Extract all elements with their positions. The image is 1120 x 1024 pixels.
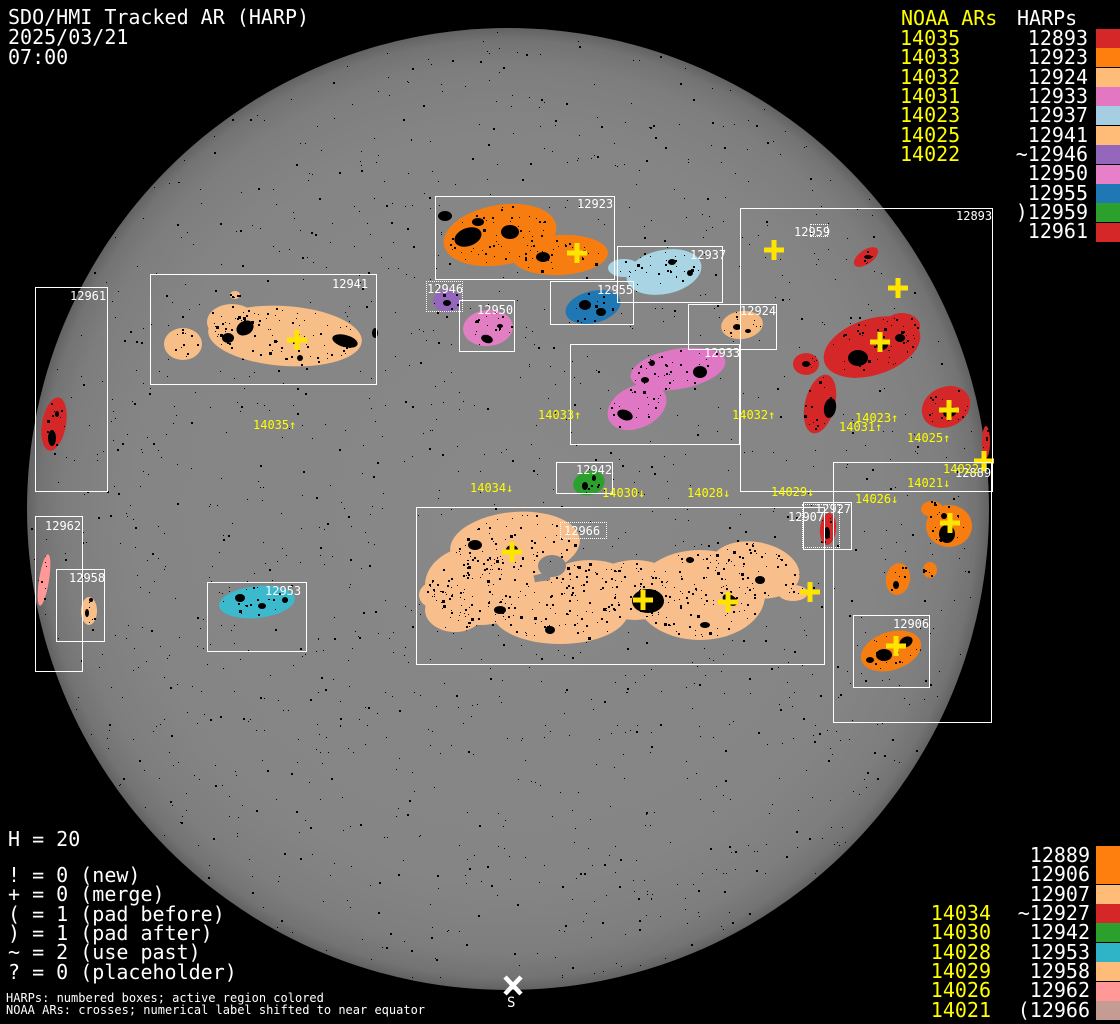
noaa-disk-label: 14035↑	[253, 419, 296, 431]
harp-box-label: 12924	[740, 305, 776, 317]
noaa-disk-label: 14029↓	[771, 486, 814, 498]
noaa-disk-label: 14028↓	[687, 487, 730, 499]
noaa-disk-label: 14034↓	[470, 482, 513, 494]
harp-count: H = 20	[8, 830, 80, 849]
color-swatch	[1096, 145, 1120, 164]
color-swatch	[1096, 904, 1120, 923]
flag-legend: ! = 0 (new) + = 0 (merge) ( = 1 (pad bef…	[8, 866, 237, 982]
color-swatch	[1096, 923, 1120, 942]
harp-box-label: 12941	[332, 278, 368, 290]
color-swatch	[1096, 1001, 1120, 1020]
harp-list-item: (12966	[1000, 1001, 1090, 1020]
noaa-list-item: 14021	[930, 1001, 991, 1020]
noaa-disk-label: 14026↓	[855, 493, 898, 505]
flag-legend-item: ? = 0 (placeholder)	[8, 963, 237, 982]
noaa-list-top: 14035 14033 14032 14031 14023 14025 1402…	[900, 29, 960, 164]
footnote-noaa: NOAA ARs: crosses; numerical label shift…	[6, 1004, 425, 1017]
harp-list-item: 12961	[1000, 222, 1088, 241]
color-swatch	[1096, 885, 1120, 904]
harp-box-label: 12962	[45, 520, 81, 532]
harp-box-label: 12959	[794, 226, 830, 238]
harp-box-12893	[740, 208, 993, 492]
harp-box-label: 12937	[690, 249, 726, 261]
noaa-list-item: 14022	[900, 145, 960, 164]
south-pole-label: S	[507, 996, 515, 1010]
color-swatch	[1096, 126, 1120, 145]
harp-list-bottom: 12889 12906 12907 ~12927 12942 12953 129…	[1000, 846, 1090, 1020]
color-swatch	[1096, 846, 1120, 865]
harp-box-label: 12906	[893, 618, 929, 630]
noaa-disk-label: 14032↑	[732, 409, 775, 421]
color-swatch	[1096, 87, 1120, 106]
color-swatch	[1096, 68, 1120, 87]
color-swatch	[1096, 203, 1120, 222]
harp-box-label: 12958	[69, 572, 105, 584]
harp-box-label: 12942	[576, 464, 612, 476]
harp-box-label: 12927	[815, 503, 851, 515]
noaa-disk-label: 14021↓	[907, 477, 950, 489]
color-swatch	[1096, 106, 1120, 125]
harp-box-12961	[35, 287, 108, 492]
noaa-disk-label: 14023↑	[855, 412, 898, 424]
harp-box-label: 12946	[427, 283, 463, 295]
harp-box-label: 12961	[70, 290, 106, 302]
harp-box-12966	[416, 507, 825, 665]
harp-box-label: 12953	[265, 585, 301, 597]
time-label: 07:00	[8, 48, 68, 67]
color-swatch	[1096, 223, 1120, 242]
harp-box-label: 12933	[704, 347, 740, 359]
harp-box-label: 12893	[956, 210, 992, 222]
noaa-disk-label: 14033↑	[538, 409, 581, 421]
noaa-disk-label: 14022↑	[943, 463, 986, 475]
solar-harp-tracker-screen: { "title": { "line1": "SDO/HMI Tracked A…	[0, 0, 1120, 1024]
color-swatch	[1096, 865, 1120, 884]
noaa-disk-label: 14025↑	[907, 432, 950, 444]
harp-box-label: 12966	[564, 525, 600, 537]
noaa-disk-label: 14030↓	[602, 487, 645, 499]
color-swatch	[1096, 943, 1120, 962]
harp-list-top: 12893 12923 12924 12933 12937 12941 ~129…	[1000, 29, 1088, 242]
color-swatch	[1096, 982, 1120, 1001]
harp-box-label: 12923	[577, 198, 613, 210]
color-swatch	[1096, 29, 1120, 48]
noaa-list-bottom: 14034 14030 14028 14029 14026 14021	[930, 904, 991, 1020]
harp-box-label: 12955	[597, 284, 633, 296]
harp-box-label: 12950	[477, 304, 513, 316]
color-swatch	[1096, 962, 1120, 981]
color-swatch	[1096, 184, 1120, 203]
color-swatch	[1096, 165, 1120, 184]
color-swatch	[1096, 48, 1120, 67]
